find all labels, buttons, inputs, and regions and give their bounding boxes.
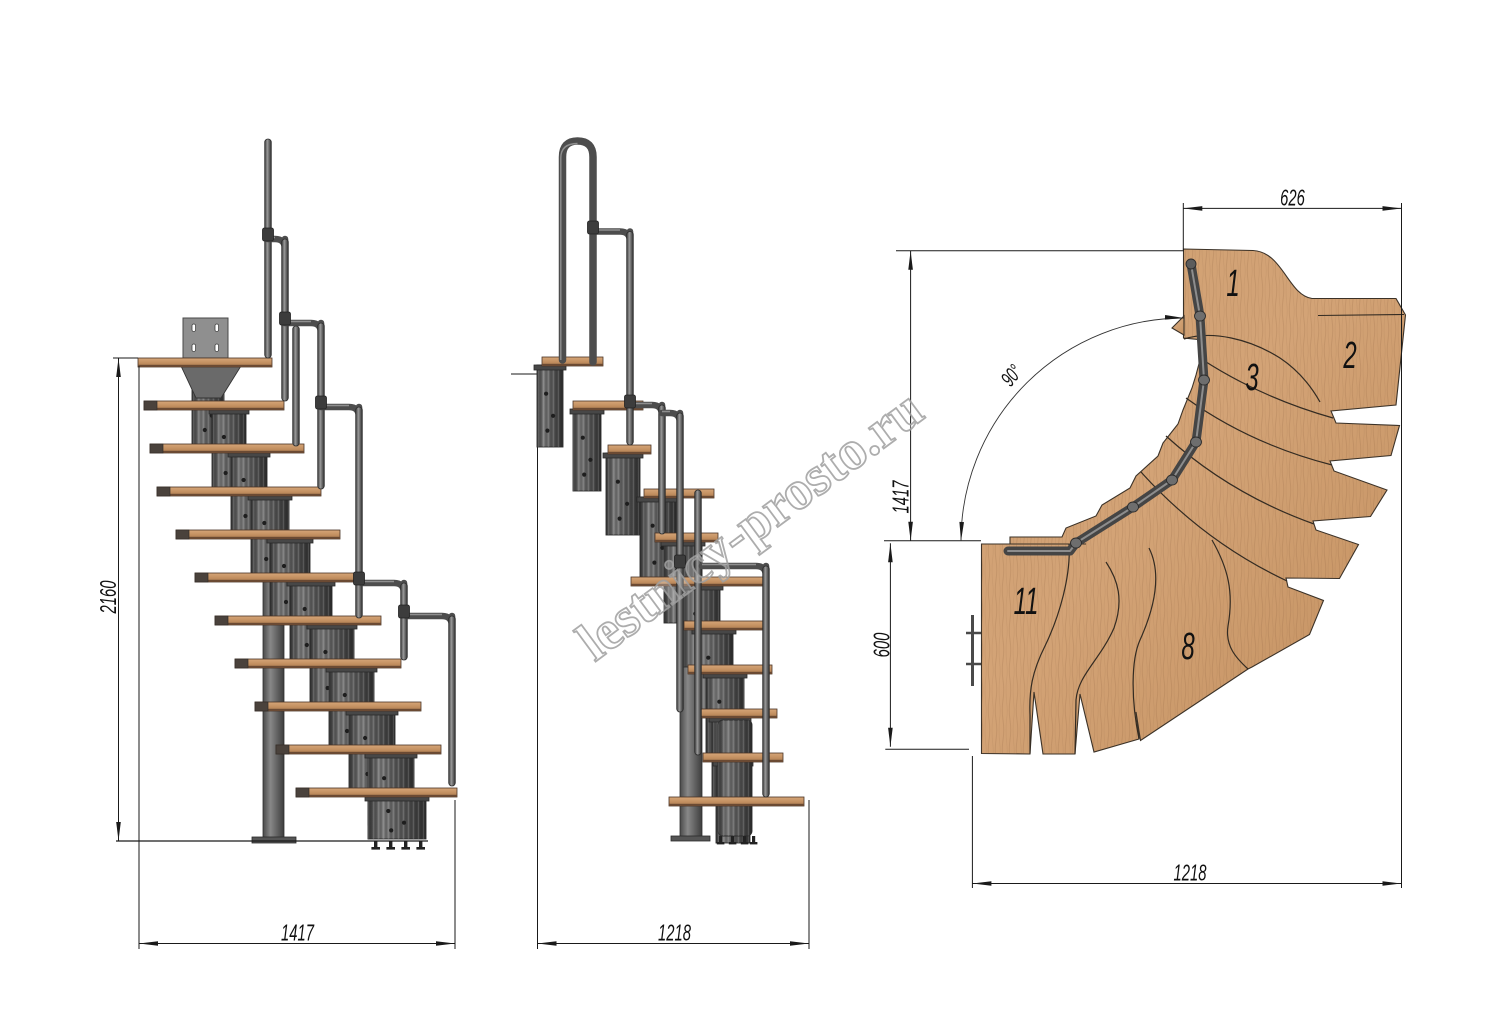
svg-text:1: 1 bbox=[1226, 261, 1239, 304]
svg-text:8: 8 bbox=[1181, 624, 1195, 667]
svg-text:2: 2 bbox=[1343, 333, 1357, 376]
svg-text:1218: 1218 bbox=[1174, 860, 1207, 886]
svg-text:2160: 2160 bbox=[96, 580, 122, 614]
svg-text:3: 3 bbox=[1245, 355, 1259, 398]
svg-text:1417: 1417 bbox=[281, 920, 315, 946]
svg-text:1218: 1218 bbox=[658, 920, 691, 946]
svg-text:600: 600 bbox=[869, 633, 895, 658]
svg-text:1417: 1417 bbox=[888, 480, 914, 514]
svg-text:11: 11 bbox=[1014, 579, 1039, 622]
svg-text:626: 626 bbox=[1280, 185, 1305, 211]
